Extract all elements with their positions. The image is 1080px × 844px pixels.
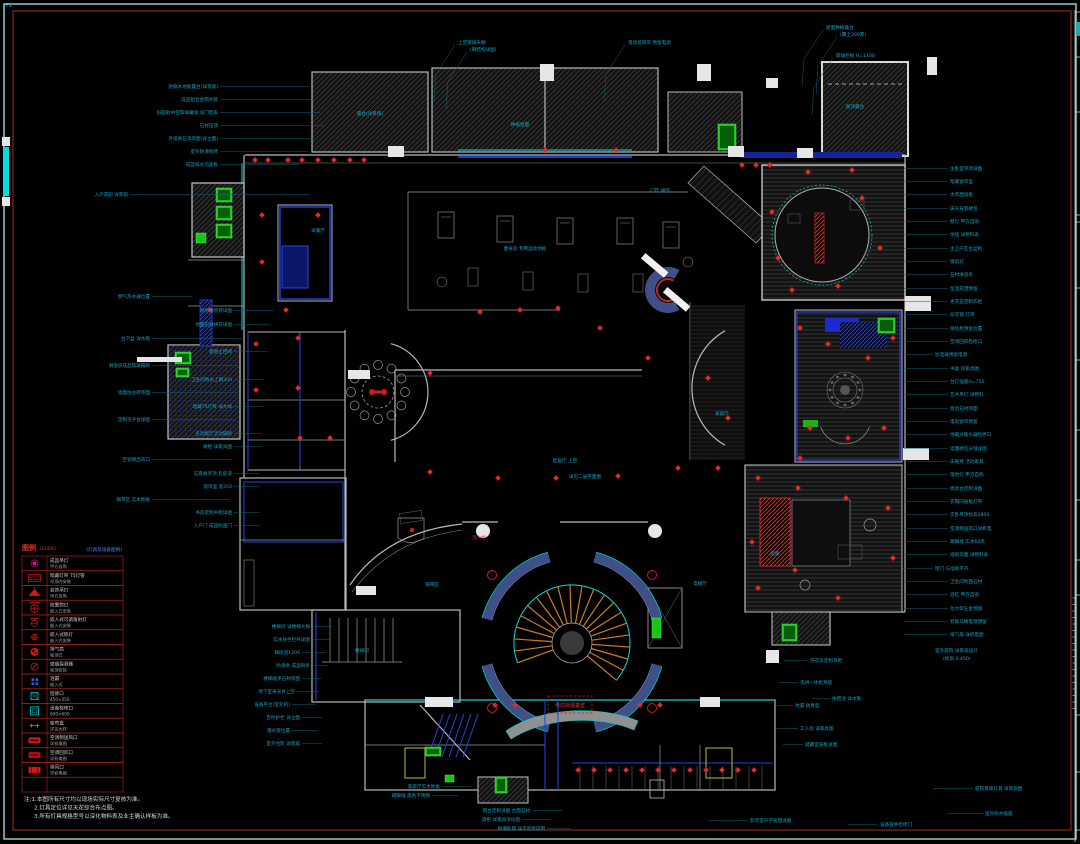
spiral-tread bbox=[516, 627, 553, 637]
legend-icon-vent-a bbox=[29, 737, 41, 743]
legend-row: 装饰吊灯甲方自购 bbox=[22, 586, 123, 601]
light-fixture-symbol bbox=[615, 473, 621, 479]
annotation-label: 排气扇 详机电图 bbox=[950, 631, 984, 638]
legend-item-spec: 吊顶内安装 bbox=[50, 578, 72, 585]
legend-icon-access-600 bbox=[31, 707, 39, 715]
annotation-label: 百叶护栏 详立面 bbox=[266, 714, 300, 721]
annotation-label: 暗藏T5灯带 详大样 bbox=[193, 403, 233, 410]
annotation-label: (钢结构详图) bbox=[470, 46, 497, 53]
annotation-label: 石材压顶 bbox=[200, 122, 219, 129]
annotation-label: 空调侧送风口详机电 bbox=[950, 525, 992, 532]
annotation-label: 露台(详景观) bbox=[357, 110, 384, 117]
atrium bbox=[482, 552, 662, 739]
annotation-label: 保险柜预留位置 bbox=[950, 325, 983, 332]
annotation-label: 厨房精装修详图 bbox=[200, 307, 233, 314]
red-marker-ring bbox=[648, 571, 657, 580]
annotation-label: 玻璃栏板 H=1100 bbox=[836, 52, 875, 59]
legend-item-name: 空调回风口 bbox=[50, 749, 73, 756]
room-bottom-left-suite bbox=[240, 478, 346, 610]
legend-row: 嵌入式可调角射灯嵌入式安装 bbox=[22, 615, 123, 630]
legend-row: 成品吊灯甲方自购 bbox=[22, 556, 123, 571]
central-hall bbox=[350, 370, 662, 592]
light-fixture-symbol bbox=[751, 767, 757, 773]
spiral-tread bbox=[575, 586, 582, 623]
corner-note: F1 bbox=[6, 3, 12, 9]
door-opening bbox=[388, 146, 404, 157]
light-fixture-symbol bbox=[715, 465, 721, 471]
annotation-label: 空调侧出风口 bbox=[122, 456, 150, 463]
annotation-label: 钢琴区 实木地板 bbox=[116, 496, 150, 503]
annotation-label: 成品排水沟盖板 bbox=[186, 161, 219, 168]
frame-left-cyan-block bbox=[3, 147, 9, 196]
annotation-label: 入户花园 详景观 bbox=[94, 191, 128, 198]
round-table-room bbox=[347, 344, 428, 441]
legend-subtitle: LEGEND bbox=[40, 546, 56, 551]
legend-icon-vent-b bbox=[29, 752, 41, 758]
legend-row bbox=[22, 777, 123, 792]
chair bbox=[360, 411, 369, 420]
annotation-label: 电梯厅 bbox=[693, 580, 707, 587]
legend-item-spec: 详机电图 bbox=[50, 740, 67, 747]
annotation-label: 窗台石材饰面 bbox=[950, 405, 978, 412]
light-fixture-symbol bbox=[259, 212, 265, 218]
annotation-label: 酒柜 详家具深化图 bbox=[482, 816, 521, 823]
light-fixture-symbol bbox=[347, 157, 353, 163]
legend-item-spec: 600×600 bbox=[50, 712, 70, 717]
treadmill bbox=[497, 216, 513, 242]
light-fixture-symbol bbox=[331, 157, 337, 163]
chair bbox=[397, 401, 406, 410]
annotation-label: 踢脚线 黑色不锈钢 bbox=[392, 792, 431, 799]
room-left-inner bbox=[278, 205, 332, 301]
annotation-label: 床头背景硬包 bbox=[950, 205, 978, 212]
legend-icon-pendant bbox=[31, 560, 38, 567]
door-opening bbox=[927, 57, 937, 75]
light-fixture-symbol bbox=[253, 341, 259, 347]
annotation-label: 屋顶露台 bbox=[846, 103, 865, 110]
room-staircase bbox=[312, 610, 460, 702]
legend-item-name: 排气扇 bbox=[50, 646, 64, 653]
annotation-label: 楼梯间 bbox=[355, 647, 369, 654]
annotation-label: 室外台阶 详景观 bbox=[266, 740, 300, 747]
annotation-label: 矮柜 详家具图 bbox=[203, 443, 232, 450]
annotation-label: 艺术吊灯 详物料 bbox=[950, 391, 984, 398]
door-opening bbox=[700, 697, 720, 707]
light-fixture-symbol bbox=[645, 355, 651, 361]
column bbox=[648, 524, 662, 538]
spiral-tread bbox=[591, 623, 627, 636]
treadmill bbox=[438, 212, 454, 238]
treadmill bbox=[557, 218, 573, 244]
legend-row: 防雾筒灯嵌入式安装 bbox=[22, 600, 123, 615]
annotation-label: 家庭厅 bbox=[715, 410, 729, 417]
annotation-label: 洗烘一体机预留 bbox=[800, 679, 833, 686]
door-opening bbox=[728, 146, 744, 157]
annotation-label: 淋浴房成品玻璃隔断 bbox=[109, 362, 151, 369]
treadmill bbox=[663, 222, 679, 248]
door-opening bbox=[540, 64, 554, 81]
annotation-label: 门厅 挑空 bbox=[650, 187, 670, 194]
light-fixture-symbol bbox=[253, 387, 259, 393]
annotation-label: 镜前灯 bbox=[950, 258, 964, 265]
spiral-tread bbox=[592, 635, 630, 640]
annotation-label: 防滑条 成品铜条 bbox=[276, 662, 310, 669]
annotation-label: 屋面种植露台 bbox=[826, 24, 854, 31]
annotation-label: 室外防水插座 bbox=[985, 810, 1013, 817]
legend-row: 窗帘盒详见大样 bbox=[22, 718, 123, 733]
annotation-label: 石膏板吊顶 乳胶漆 bbox=[194, 470, 233, 477]
light-fixture-symbol bbox=[427, 370, 433, 376]
diagonal-corridor bbox=[688, 166, 772, 243]
legend-row: 嵌入式筒灯嵌入式安装 bbox=[22, 630, 123, 645]
annotation-label: 地面石材拼花详图 bbox=[195, 321, 232, 328]
legend-note: (灯具及设备图例) bbox=[86, 546, 122, 553]
legend-item-name: 空调侧送风口 bbox=[50, 734, 78, 741]
door-opening bbox=[797, 148, 813, 158]
annotation-label: 定制洗手台详图 bbox=[118, 416, 151, 423]
door-opening bbox=[697, 64, 711, 81]
annotation-label: 楼梯间 详楼梯大样 bbox=[272, 623, 311, 630]
legend-item-name: 嵌入式筒灯 bbox=[50, 631, 73, 638]
annotation-label: 卫生间防水上翻300 bbox=[191, 376, 232, 383]
light-fixture-symbol bbox=[553, 475, 559, 481]
light-fixture-symbol bbox=[623, 767, 629, 773]
light-fixture-symbol bbox=[671, 767, 677, 773]
legend-item-spec: 450×450 bbox=[50, 697, 70, 702]
legend-icon-smoke bbox=[31, 663, 38, 670]
legend-item-name: 暗藏灯带 T5灯管 bbox=[50, 572, 85, 579]
annotation-label: 墙面硬包分缝详图 bbox=[950, 445, 987, 452]
legend-icon-bath-heater bbox=[32, 678, 39, 685]
annotation-label: 设备管井检修门 bbox=[880, 821, 913, 828]
annotation-label: 楼梯踏步石材饰面 bbox=[263, 675, 300, 682]
annotation-label: (标高-0.450) bbox=[943, 655, 971, 662]
annotation-label: 暗藏窗帘盒 bbox=[950, 178, 973, 185]
annotation-label: 空调回风检修口 bbox=[950, 338, 983, 345]
annotation-label: 庭院景观灯具 详景观图 bbox=[975, 785, 1023, 792]
red-note: 消火栓 bbox=[472, 534, 486, 541]
floorplan-canvas: F1 bbox=[0, 0, 1080, 844]
general-notes: 注:1.本图所有尺寸均以现场实际尺寸复核为准。2.灯具定位详见天花综合布点图。3… bbox=[24, 795, 174, 820]
annotation-label: 书桌 详家具图 bbox=[950, 365, 979, 372]
annotation-label: 起居厅 上空 bbox=[553, 457, 578, 464]
light-fixture-symbol bbox=[361, 157, 367, 163]
legend-row: 暗藏灯带 T5灯管吊顶内安装 bbox=[22, 571, 123, 586]
spiral-tread bbox=[591, 649, 628, 659]
chair bbox=[374, 361, 383, 370]
floorplan: 电动挡烟垂壁 消火栓 bbox=[2, 57, 937, 803]
legend-item-name: 窗帘盒 bbox=[50, 719, 64, 726]
door-opening bbox=[2, 137, 10, 146]
light-fixture-symbol bbox=[675, 465, 681, 471]
note-line: 注:1.本图所有尺寸均以现场实际尺寸复核为准。 bbox=[24, 795, 143, 803]
annotation-label: 更衣室定制衣柜 bbox=[950, 298, 983, 305]
door-opening bbox=[356, 586, 376, 595]
svg-text:电动挡烟垂壁: 电动挡烟垂壁 bbox=[555, 702, 585, 709]
light-fixture-symbol bbox=[427, 469, 433, 475]
legend-icon-curtain-box bbox=[30, 724, 40, 728]
legend-item-spec: 嵌入式安装 bbox=[50, 607, 72, 614]
yellow-box bbox=[405, 748, 425, 778]
spiral-tread bbox=[514, 639, 552, 642]
legend-icon-strip bbox=[29, 575, 41, 582]
legend-item-spec: 甲方自购 bbox=[50, 563, 67, 570]
legend-item-name: 嵌入式可调角射灯 bbox=[50, 616, 87, 623]
gym-bench bbox=[468, 268, 478, 286]
light-fixture-symbol bbox=[283, 307, 289, 313]
red-marker-ring bbox=[488, 571, 497, 580]
annotation-label: 防腐木地板露台(详景观) bbox=[168, 83, 218, 90]
legend-item-name: 检修口 bbox=[50, 690, 64, 697]
spiral-staircase bbox=[514, 585, 630, 680]
annotation-label: 梯段宽1200 bbox=[275, 649, 301, 656]
chair bbox=[347, 388, 356, 397]
note-line: 3.所有灯具规格型号以深化物料表及业主确认样板为准。 bbox=[34, 812, 174, 820]
rooms-left-cluster bbox=[248, 332, 345, 470]
legend-icon-downlight bbox=[32, 634, 38, 640]
annotation-label: 卫生间地面石材 bbox=[950, 578, 983, 585]
legend-item-spec: 甲方自购 bbox=[50, 593, 67, 600]
legend-row: 设备检修口600×600 bbox=[22, 704, 123, 719]
annotation-label: 吧台定制详图 台面石材 bbox=[483, 807, 531, 814]
fireplace bbox=[815, 213, 824, 263]
door-opening bbox=[905, 296, 931, 311]
annotation-label: 衣帽间层板灯带 bbox=[950, 498, 983, 505]
light-fixture-symbol bbox=[315, 212, 321, 218]
light-fixture-symbol bbox=[703, 767, 709, 773]
door-opening bbox=[2, 197, 10, 206]
legend-item-spec: 详机电图 bbox=[50, 755, 67, 762]
light-fixture-symbol bbox=[252, 157, 258, 163]
legend-item-name: 防雾筒灯 bbox=[50, 601, 69, 608]
door-opening bbox=[348, 370, 370, 379]
light-fixture-symbol bbox=[657, 702, 663, 708]
annotation-label: 次卧吊顶标高2800 bbox=[950, 511, 989, 518]
annotation-label: 主卧室吊顶详图 bbox=[950, 165, 983, 172]
chair bbox=[401, 388, 410, 397]
door-opening bbox=[137, 357, 182, 362]
annotation-label: 电动遮阳帘 预留电源 bbox=[628, 39, 671, 46]
legend-row: 排气扇吸顶式 bbox=[22, 645, 123, 660]
annotation-label: 钢琴区 bbox=[425, 581, 439, 588]
annotation-label: 影音室声学处理详图 bbox=[750, 817, 792, 824]
annotation-label: 洗衣房定制吊柜 bbox=[810, 657, 843, 664]
legend-row: 空调回风口详机电图 bbox=[22, 748, 123, 763]
annotation-label: 电动窗帘预留 bbox=[950, 418, 978, 425]
annotation-label: 墙面仿古砖饰面 bbox=[118, 389, 151, 396]
annotation-label: 踢脚线 实木60高 bbox=[950, 538, 985, 545]
room-family bbox=[690, 302, 745, 460]
light-fixture-symbol bbox=[719, 767, 725, 773]
annotation-label: 防潮处理 详见装修说明 bbox=[498, 825, 546, 832]
annotation-label: 窗帘盒 宽350 bbox=[203, 483, 232, 490]
annotation-label: 上空玻璃天棚 bbox=[458, 39, 486, 46]
annotation-label: 浴缸 甲方自购 bbox=[950, 591, 979, 598]
legend-item-spec: 嵌入式安装 bbox=[50, 637, 72, 644]
legend-item-spec: 吸顶安装 bbox=[50, 666, 68, 673]
gym-bench bbox=[578, 274, 588, 292]
annotation-label: 入户门 成品防盗门 bbox=[194, 522, 233, 529]
legend-item-spec: 嵌入式安装 bbox=[50, 622, 72, 629]
annotation-label: 木饰面墙板 bbox=[950, 191, 973, 198]
annotation-label: 台灯插座H=750 bbox=[950, 378, 985, 385]
legend-icon-deco-pendant bbox=[29, 587, 41, 596]
chair bbox=[397, 374, 406, 383]
legend-item-name: 感烟探测器 bbox=[50, 660, 73, 667]
legend-row: 排风口详机电图 bbox=[22, 763, 123, 778]
annotation-label: 设备平台(室外机) bbox=[254, 701, 290, 708]
annotation-label: 恒温花洒预留 bbox=[950, 285, 978, 292]
room-circular bbox=[762, 165, 905, 300]
room-right-lower bbox=[745, 465, 902, 612]
light-fixture-symbol bbox=[607, 767, 613, 773]
equipment-block bbox=[196, 233, 206, 243]
treadmill bbox=[617, 218, 633, 244]
annotation-label: 拖把池 详水施 bbox=[832, 695, 861, 702]
legend-icon-access-450 bbox=[31, 693, 38, 700]
light-fixture-symbol bbox=[315, 157, 321, 163]
annotation-label: 地漏 防臭型 bbox=[795, 702, 820, 709]
legend-row: 空调侧送风口详机电图 bbox=[22, 733, 123, 748]
light-fixture-symbol bbox=[285, 157, 291, 163]
red-marker-ring bbox=[648, 704, 657, 713]
door-opening bbox=[766, 650, 779, 663]
legend-icon-downlight-fog bbox=[30, 603, 40, 613]
light-fixture-symbol bbox=[495, 475, 501, 481]
annotation-label: 低辐射中空玻璃幕墙 详门窗表 bbox=[157, 109, 219, 116]
spiral-tread bbox=[570, 585, 571, 623]
annotation-label: 落地灯 甲方自购 bbox=[950, 471, 984, 478]
annotation-label: 地下室采光井上空 bbox=[258, 688, 295, 695]
equipment-block bbox=[445, 775, 454, 782]
legend-item-spec: 详机电图 bbox=[50, 770, 67, 777]
annotation-label: 落水管位置 bbox=[267, 727, 290, 734]
annotation-label: 种植屋面 bbox=[511, 121, 530, 128]
gym-bench bbox=[523, 272, 533, 290]
annotation-label: 外墙真石漆饰面(详立面) bbox=[168, 135, 218, 142]
annotation-label: 毛巾架五金预留 bbox=[950, 605, 983, 612]
spiral-tread bbox=[515, 646, 553, 651]
annotation-label: 地毯 详物料表 bbox=[950, 231, 979, 238]
chair bbox=[350, 401, 359, 410]
light-fixture-symbol bbox=[517, 307, 523, 313]
legend-item-spec: 详见大样 bbox=[50, 725, 67, 732]
door-opening bbox=[903, 448, 929, 460]
light-fixture-symbol bbox=[299, 157, 305, 163]
annotation-label: 成品铝合金雨水管 bbox=[181, 96, 218, 103]
chair bbox=[374, 415, 383, 424]
terrace-top-right bbox=[822, 62, 908, 156]
annotation-label: 室外庭院 详景观设计 bbox=[935, 647, 978, 654]
annotation-label: 燃气热水器位置 bbox=[118, 293, 151, 300]
gym-bench bbox=[633, 274, 643, 292]
light-fixture-symbol bbox=[259, 259, 265, 265]
note-line: 2.灯具定位详见天花综合布点图。 bbox=[34, 804, 118, 812]
legend-icon-exhaust-fan bbox=[31, 648, 39, 656]
legend-row: 检修口450×450 bbox=[22, 689, 123, 704]
legend-table: 图例 LEGEND (灯具及设备图例) 成品吊灯甲方自购暗藏灯带 T5灯管吊顶内… bbox=[22, 543, 123, 792]
legend-item-name: 装饰吊灯 bbox=[50, 587, 69, 594]
spiral-tread bbox=[517, 650, 553, 663]
annotation-label: 详见二层平面图 bbox=[569, 473, 602, 480]
annotation-label: 石材淋浴房 bbox=[950, 271, 973, 278]
legend-icon-vent-c bbox=[29, 767, 41, 773]
light-fixture-symbol bbox=[687, 767, 693, 773]
annotation-label: 工人房 详家具图 bbox=[800, 725, 834, 732]
annotation-label: 家庭厅实木地板 bbox=[408, 783, 441, 790]
legend-item-name: 设备检修口 bbox=[50, 705, 73, 712]
annotation-label: 走廊 bbox=[770, 550, 780, 557]
light-fixture-symbol bbox=[597, 325, 603, 331]
room-laundry bbox=[772, 612, 830, 645]
spiral-tread bbox=[592, 644, 630, 647]
annotation-label: 床尾凳 活动家具 bbox=[950, 458, 984, 465]
legend-row: 感烟探测器吸顶安装 bbox=[22, 659, 123, 674]
annotation-label: 智能马桶电源预留 bbox=[950, 618, 987, 625]
annotation-label: 早餐厅 bbox=[311, 227, 325, 234]
annotation-label: 储藏室层板详图 bbox=[805, 741, 838, 748]
annotation-label: 室外防滑地砖 bbox=[190, 148, 218, 155]
light-fixture-symbol bbox=[639, 767, 645, 773]
light-fixture-symbol bbox=[265, 157, 271, 163]
annotation-label: 加湿器预留电源 bbox=[935, 351, 968, 358]
annotation-label: 主卫干区台盆柜 bbox=[950, 245, 983, 252]
legend-row: 浴霸嵌入式 bbox=[22, 674, 123, 689]
annotation-label: (覆土300厚) bbox=[840, 31, 866, 38]
door-opening bbox=[425, 697, 453, 707]
annotation-label: 壁灯 甲方自购 bbox=[950, 218, 979, 225]
annotation-label: 实木扶手栏杆详图 bbox=[273, 636, 310, 643]
legend-item-name: 浴霸 bbox=[50, 675, 60, 682]
legend-item-name: 成品吊灯 bbox=[50, 557, 69, 564]
annotation-label: 地暖分集水器检修口 bbox=[950, 431, 992, 438]
legend-item-name: 排风口 bbox=[50, 764, 64, 771]
annotation-label: 多功能厅活动隔断 bbox=[195, 430, 232, 437]
annotation-label: 台下盆 详水施 bbox=[121, 335, 150, 342]
legend-title: 图例 bbox=[22, 543, 36, 552]
annotation-label: 烟道止回阀 bbox=[209, 348, 232, 355]
annotation-label: 梳妆台定制详图 bbox=[950, 485, 983, 492]
legend-item-spec: 吸顶式 bbox=[50, 652, 63, 659]
legend-item-spec: 嵌入式 bbox=[50, 681, 63, 688]
annotation-label: 健身房 专用运动地板 bbox=[504, 245, 547, 252]
annotation-label: 暗门 与墙板平齐 bbox=[935, 565, 969, 572]
equipment-block bbox=[652, 618, 661, 638]
annotation-label: 书房定制书柜详图 bbox=[195, 509, 232, 516]
light-fixture-symbol bbox=[591, 767, 597, 773]
legend-icon-adj-spot bbox=[31, 618, 39, 626]
spiral-tread bbox=[579, 589, 593, 624]
annotation-label: 穿衣镜 灯带 bbox=[950, 311, 975, 318]
annotation-label: 墙纸饰面 详物料表 bbox=[950, 551, 989, 558]
door-opening bbox=[766, 78, 778, 88]
desk bbox=[399, 511, 422, 524]
